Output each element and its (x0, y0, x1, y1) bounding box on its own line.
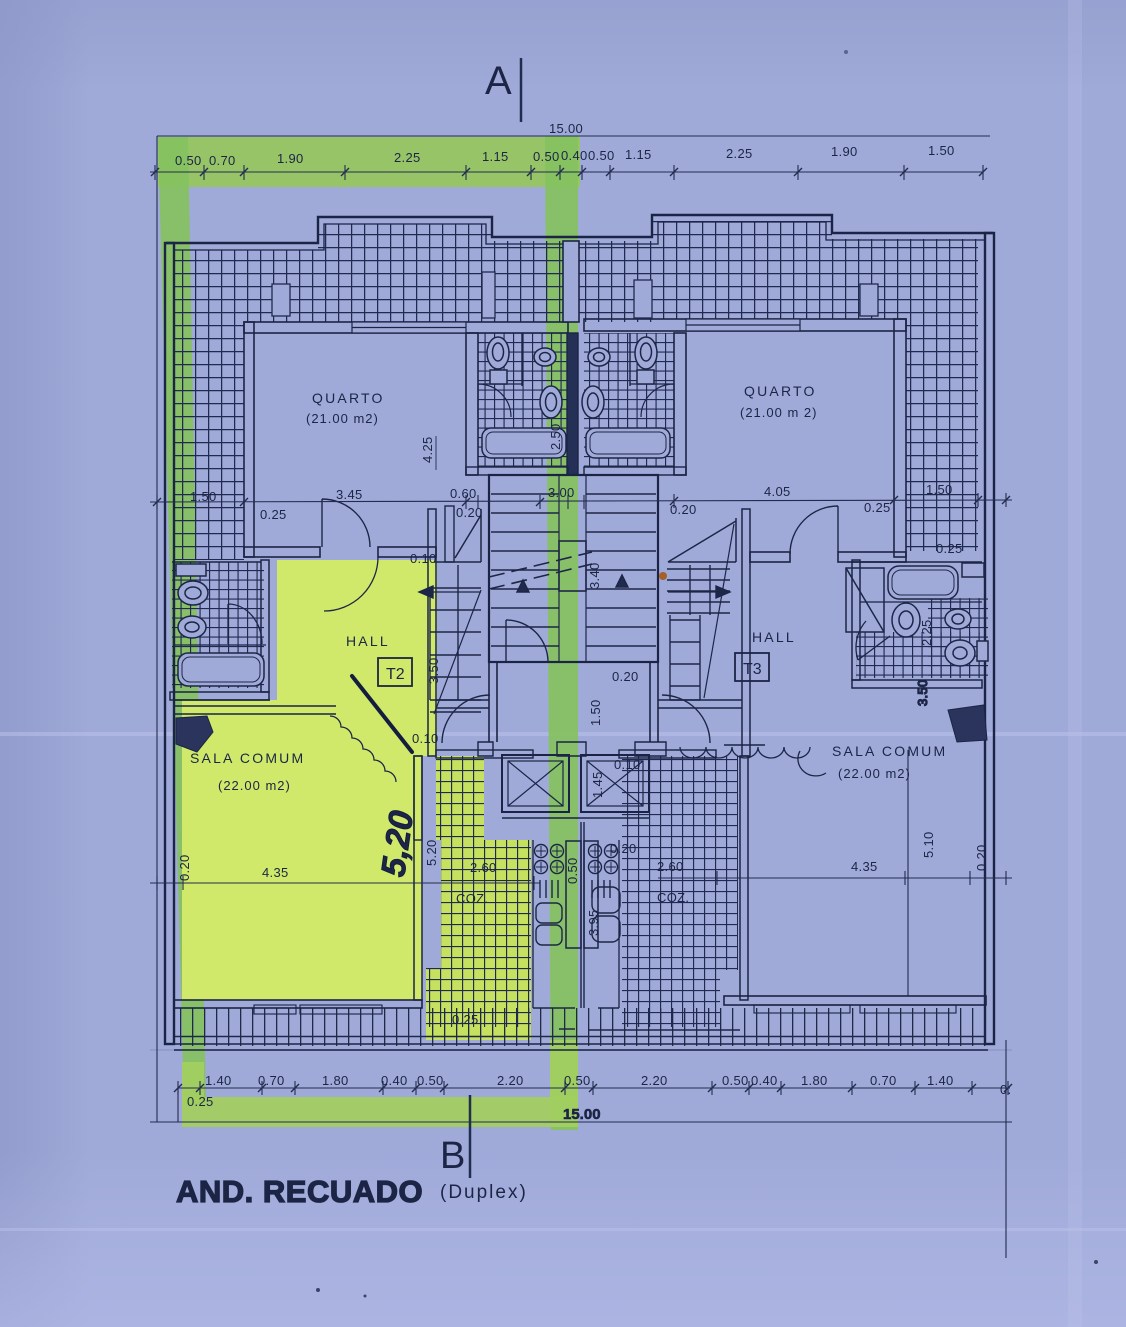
svg-text:1.15: 1.15 (625, 147, 652, 162)
svg-text:2.25: 2.25 (919, 619, 934, 646)
svg-text:(21.00 m 2): (21.00 m 2) (740, 405, 817, 420)
svg-text:0.: 0. (1000, 1082, 1011, 1097)
svg-text:2.60: 2.60 (657, 859, 684, 874)
svg-text:1.90: 1.90 (277, 151, 304, 166)
svg-text:0.20: 0.20 (456, 505, 483, 520)
svg-text:1.50: 1.50 (190, 489, 217, 504)
svg-text:0.20: 0.20 (670, 502, 697, 517)
svg-text:3.50: 3.50 (915, 679, 930, 706)
svg-text:HALL: HALL (752, 629, 796, 645)
svg-text:1.50: 1.50 (588, 699, 603, 726)
svg-text:3.00: 3.00 (548, 485, 575, 500)
svg-text:0.50: 0.50 (417, 1073, 444, 1088)
svg-text:3.40: 3.40 (587, 562, 602, 589)
svg-text:4.35: 4.35 (851, 859, 878, 874)
svg-text:B: B (440, 1135, 465, 1177)
svg-text:1.40: 1.40 (205, 1073, 232, 1088)
svg-text:AND. RECUADO: AND. RECUADO (176, 1174, 423, 1209)
svg-text:4.05: 4.05 (764, 484, 791, 499)
svg-text:1.40: 1.40 (927, 1073, 954, 1088)
svg-text:SALA COMUM: SALA COMUM (832, 743, 947, 759)
svg-text:0.10: 0.10 (410, 551, 437, 566)
svg-text:5.20: 5.20 (424, 839, 439, 866)
svg-text:4.35: 4.35 (262, 865, 289, 880)
svg-text:0.20: 0.20 (610, 841, 637, 856)
svg-text:0.20: 0.20 (612, 669, 639, 684)
svg-text:15.00: 15.00 (563, 1106, 601, 1123)
svg-text:HALL: HALL (346, 633, 390, 649)
svg-text:2.25: 2.25 (394, 150, 421, 165)
svg-text:T3: T3 (743, 661, 762, 678)
svg-text:1.50: 1.50 (926, 482, 953, 497)
svg-text:0.10: 0.10 (614, 757, 641, 772)
svg-text:0.50: 0.50 (175, 153, 202, 168)
svg-text:2.60: 2.60 (470, 860, 497, 875)
svg-text:0.70: 0.70 (209, 153, 236, 168)
svg-text:(Duplex): (Duplex) (440, 1182, 528, 1203)
svg-text:(21.00 m2): (21.00 m2) (306, 411, 379, 426)
svg-text:0.70: 0.70 (258, 1073, 285, 1088)
svg-text:0.60: 0.60 (450, 486, 477, 501)
svg-text:3.50: 3.50 (426, 657, 441, 684)
svg-text:T2: T2 (386, 666, 405, 683)
svg-text:2.20: 2.20 (497, 1073, 524, 1088)
svg-text:0.40: 0.40 (751, 1073, 778, 1088)
svg-text:QUARTO: QUARTO (744, 383, 817, 399)
svg-text:3.45: 3.45 (336, 487, 363, 502)
svg-text:2.50: 2.50 (548, 423, 563, 450)
svg-text:2.25: 2.25 (726, 146, 753, 161)
svg-text:0.50: 0.50 (533, 149, 560, 164)
svg-text:SALA COMUM: SALA COMUM (190, 750, 305, 766)
svg-text:1.15: 1.15 (482, 149, 509, 164)
svg-text:0.50: 0.50 (588, 148, 615, 163)
svg-text:0.40: 0.40 (561, 148, 588, 163)
svg-text:(22.00 m2): (22.00 m2) (218, 778, 291, 793)
svg-text:3.95: 3.95 (586, 909, 601, 936)
svg-text:(22.00 m2): (22.00 m2) (838, 766, 911, 781)
svg-text:1.45: 1.45 (590, 771, 605, 798)
svg-text:4.25: 4.25 (420, 436, 435, 463)
svg-text:5.10: 5.10 (921, 831, 936, 858)
svg-text:0.20: 0.20 (974, 844, 989, 871)
svg-text:0.25: 0.25 (260, 507, 287, 522)
svg-text:15.00: 15.00 (549, 121, 583, 136)
svg-text:0.40: 0.40 (381, 1073, 408, 1088)
svg-text:1.90: 1.90 (831, 144, 858, 159)
svg-text:2.20: 2.20 (641, 1073, 668, 1088)
svg-text:0.70: 0.70 (870, 1073, 897, 1088)
svg-text:0.20: 0.20 (177, 854, 192, 881)
svg-text:0.25: 0.25 (864, 500, 891, 515)
svg-text:1.80: 1.80 (801, 1073, 828, 1088)
svg-text:0.50: 0.50 (722, 1073, 749, 1088)
svg-text:0.25: 0.25 (936, 541, 963, 556)
svg-text:COZ.: COZ. (657, 890, 689, 905)
svg-text:0.50: 0.50 (564, 1073, 591, 1088)
svg-text:0.25: 0.25 (187, 1094, 214, 1109)
svg-text:1.80: 1.80 (322, 1073, 349, 1088)
svg-text:A: A (485, 59, 512, 103)
svg-text:COZ.: COZ. (456, 891, 488, 906)
svg-text:0.50: 0.50 (565, 857, 580, 884)
svg-text:0.10: 0.10 (412, 731, 439, 746)
svg-text:1.50: 1.50 (928, 143, 955, 158)
svg-text:0.25: 0.25 (452, 1012, 479, 1027)
svg-text:QUARTO: QUARTO (312, 390, 385, 406)
